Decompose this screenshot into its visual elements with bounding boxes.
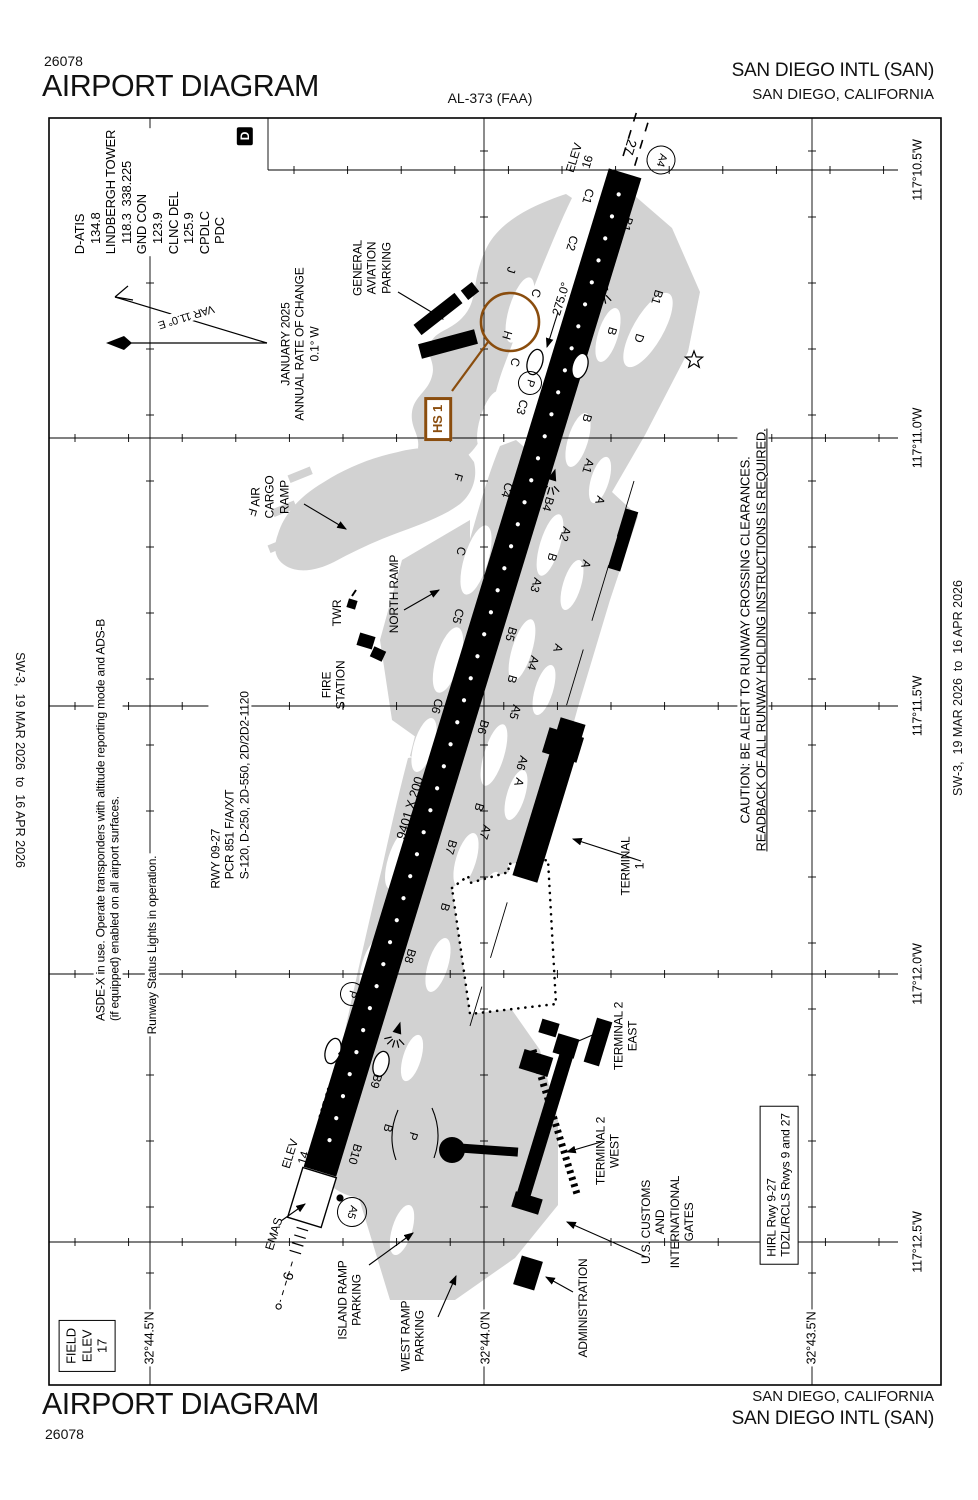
- airport-diagram-page: 26078 AIRPORT DIAGRAM AL-373 (FAA) SAN D…: [0, 0, 978, 1500]
- label-administration: ADMINISTRATION: [576, 1259, 590, 1358]
- label-west-ramp-parking: WEST RAMPPARKING: [399, 1301, 428, 1372]
- label-rwsl-note: Runway Status Lights in operation.: [145, 854, 159, 1037]
- label-cpdlc-d-symbol: D: [237, 127, 253, 145]
- label-asdex-note: ASDE-X in use. Operate transponders with…: [94, 617, 123, 1023]
- footer-chart-code: 26078: [45, 1426, 84, 1442]
- label-us-customs: U.S. CUSTOMSANDINTERNATIONALGATES: [639, 1176, 697, 1269]
- label-field-elevation: FIELDELEV17: [59, 1320, 116, 1372]
- label-longitude-117-12-0: 117°12.0'W: [911, 941, 926, 1006]
- footer-title: AIRPORT DIAGRAM: [42, 1386, 319, 1422]
- label-longitude-117-12-5: 117°12.5'W: [911, 1209, 926, 1274]
- label-air-cargo-ramp: AIRCARGORAMP: [248, 475, 291, 518]
- label-terminal-1: TERMINAL1: [619, 836, 648, 895]
- footer-city: SAN DIEGO, CALIFORNIA: [560, 1388, 934, 1405]
- label-longitude-117-11-0: 117°11.0'W: [911, 406, 926, 471]
- label-longitude-117-11-5: 117°11.5'W: [911, 674, 926, 739]
- label-caution-note: CAUTION: BE ALERT TO RUNWAY CROSSING CLE…: [737, 427, 768, 854]
- label-hirl-note: HIRL Rwy 9-27TDZL/RCLS Rwys 9 and 27: [760, 1105, 799, 1264]
- label-latitude-32-44-0: 32°44.0'N: [479, 1310, 494, 1367]
- label-terminal-2-west: TERMINAL 2WEST: [594, 1117, 623, 1185]
- label-communications: D-ATIS 134.8LINDBERGH TOWER 118.3 338.22…: [72, 128, 228, 256]
- left-edition-date: SW-3, 19 MAR 2026 to 16 APR 2026: [13, 652, 27, 868]
- label-fire-station: FIRESTATION: [320, 661, 349, 710]
- label-runway-data-note: RWY 09-27 PCR 851 F/A/X/T S-120, D-250, …: [208, 689, 251, 890]
- label-latitude-32-43-5: 32°43.5'N: [805, 1310, 820, 1367]
- airport-diagram-map: 27ELEV16A4C1C2B1B1BD275.0°JCHCPC3BHS 1FF…: [0, 0, 978, 1500]
- label-terminal-2-east: TERMINAL 2EAST: [612, 1002, 641, 1070]
- footer-airport-name: SAN DIEGO INTL (SAN): [560, 1408, 934, 1430]
- label-general-aviation-parking: GENERALAVIATIONPARKING: [350, 240, 393, 296]
- label-latitude-32-44-5: 32°44.5'N: [143, 1310, 158, 1367]
- label-hotspot-hs1-label: HS 1: [424, 397, 452, 441]
- label-island-ramp-parking: ISLAND RAMPPARKING: [336, 1260, 365, 1339]
- label-north-ramp: NORTH RAMP: [387, 555, 401, 633]
- label-longitude-117-10-5: 117°10.5'W: [911, 137, 926, 202]
- right-edition-date: SW-3, 19 MAR 2026 to 16 APR 2026: [951, 580, 965, 796]
- label-variation-date-note: JANUARY 2025ANNUAL RATE OF CHANGE0.1° W: [278, 265, 321, 422]
- label-tower: TWR: [330, 600, 344, 627]
